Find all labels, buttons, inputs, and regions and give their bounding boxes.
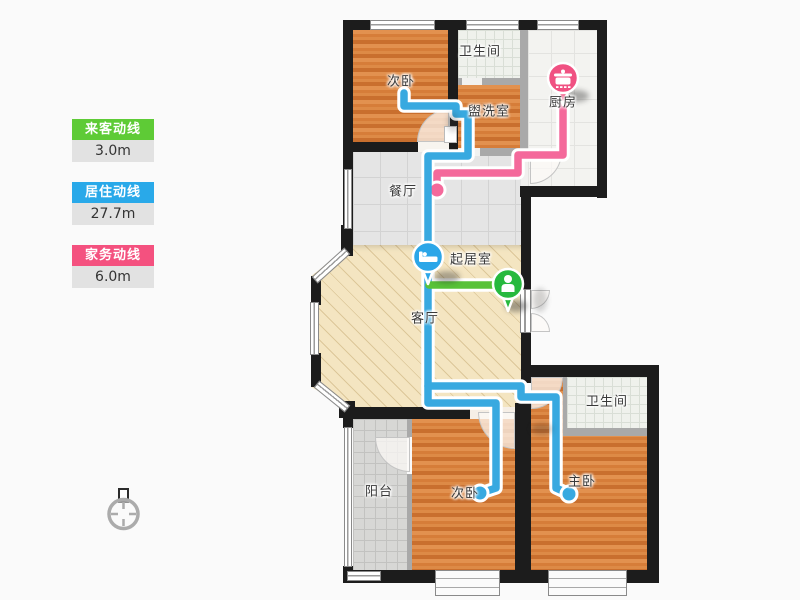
- legend-item-house[interactable]: 家务动线 6.0m: [72, 245, 154, 288]
- room-label-washroom: 盥洗室: [468, 101, 510, 120]
- room-label-dining: 餐厅: [389, 181, 417, 200]
- legend-living-label: 居住动线: [72, 182, 154, 203]
- room-label-balcony: 阳台: [365, 481, 393, 500]
- room-label-kitchen: 厨房: [549, 92, 577, 111]
- flow-line-living: [404, 93, 496, 493]
- room-label-living: 起居室: [450, 249, 492, 268]
- room-label-bath-top: 卫生间: [459, 41, 501, 60]
- legend-guest-value: 3.0m: [72, 140, 154, 162]
- legend-house-label: 家务动线: [72, 245, 154, 266]
- room-label-parlor: 客厅: [411, 308, 439, 327]
- legend-item-living[interactable]: 居住动线 27.7m: [72, 182, 154, 225]
- legend-house-value: 6.0m: [72, 266, 154, 288]
- legend-living-value: 27.7m: [72, 203, 154, 225]
- legend-item-guest[interactable]: 来客动线 3.0m: [72, 119, 154, 162]
- floorplan-canvas: 来客动线 3.0m 居住动线 27.7m 家务动线 6.0m: [0, 0, 800, 600]
- compass-icon: [109, 489, 138, 529]
- soft-shadow: [434, 271, 460, 283]
- room-label-master: 主卧: [568, 471, 596, 490]
- soft-shadow: [533, 288, 547, 312]
- soft-shadow: [447, 112, 459, 132]
- legend-guest-label: 来客动线: [72, 119, 154, 140]
- soft-shadow: [531, 423, 553, 435]
- flow-legend: 来客动线 3.0m 居住动线 27.7m 家务动线 6.0m: [72, 119, 154, 308]
- room-label-bath-right: 卫生间: [586, 391, 628, 410]
- room-label-bedroom-top: 次卧: [387, 71, 415, 90]
- room-label-bedroom-bottom: 次卧: [451, 483, 479, 502]
